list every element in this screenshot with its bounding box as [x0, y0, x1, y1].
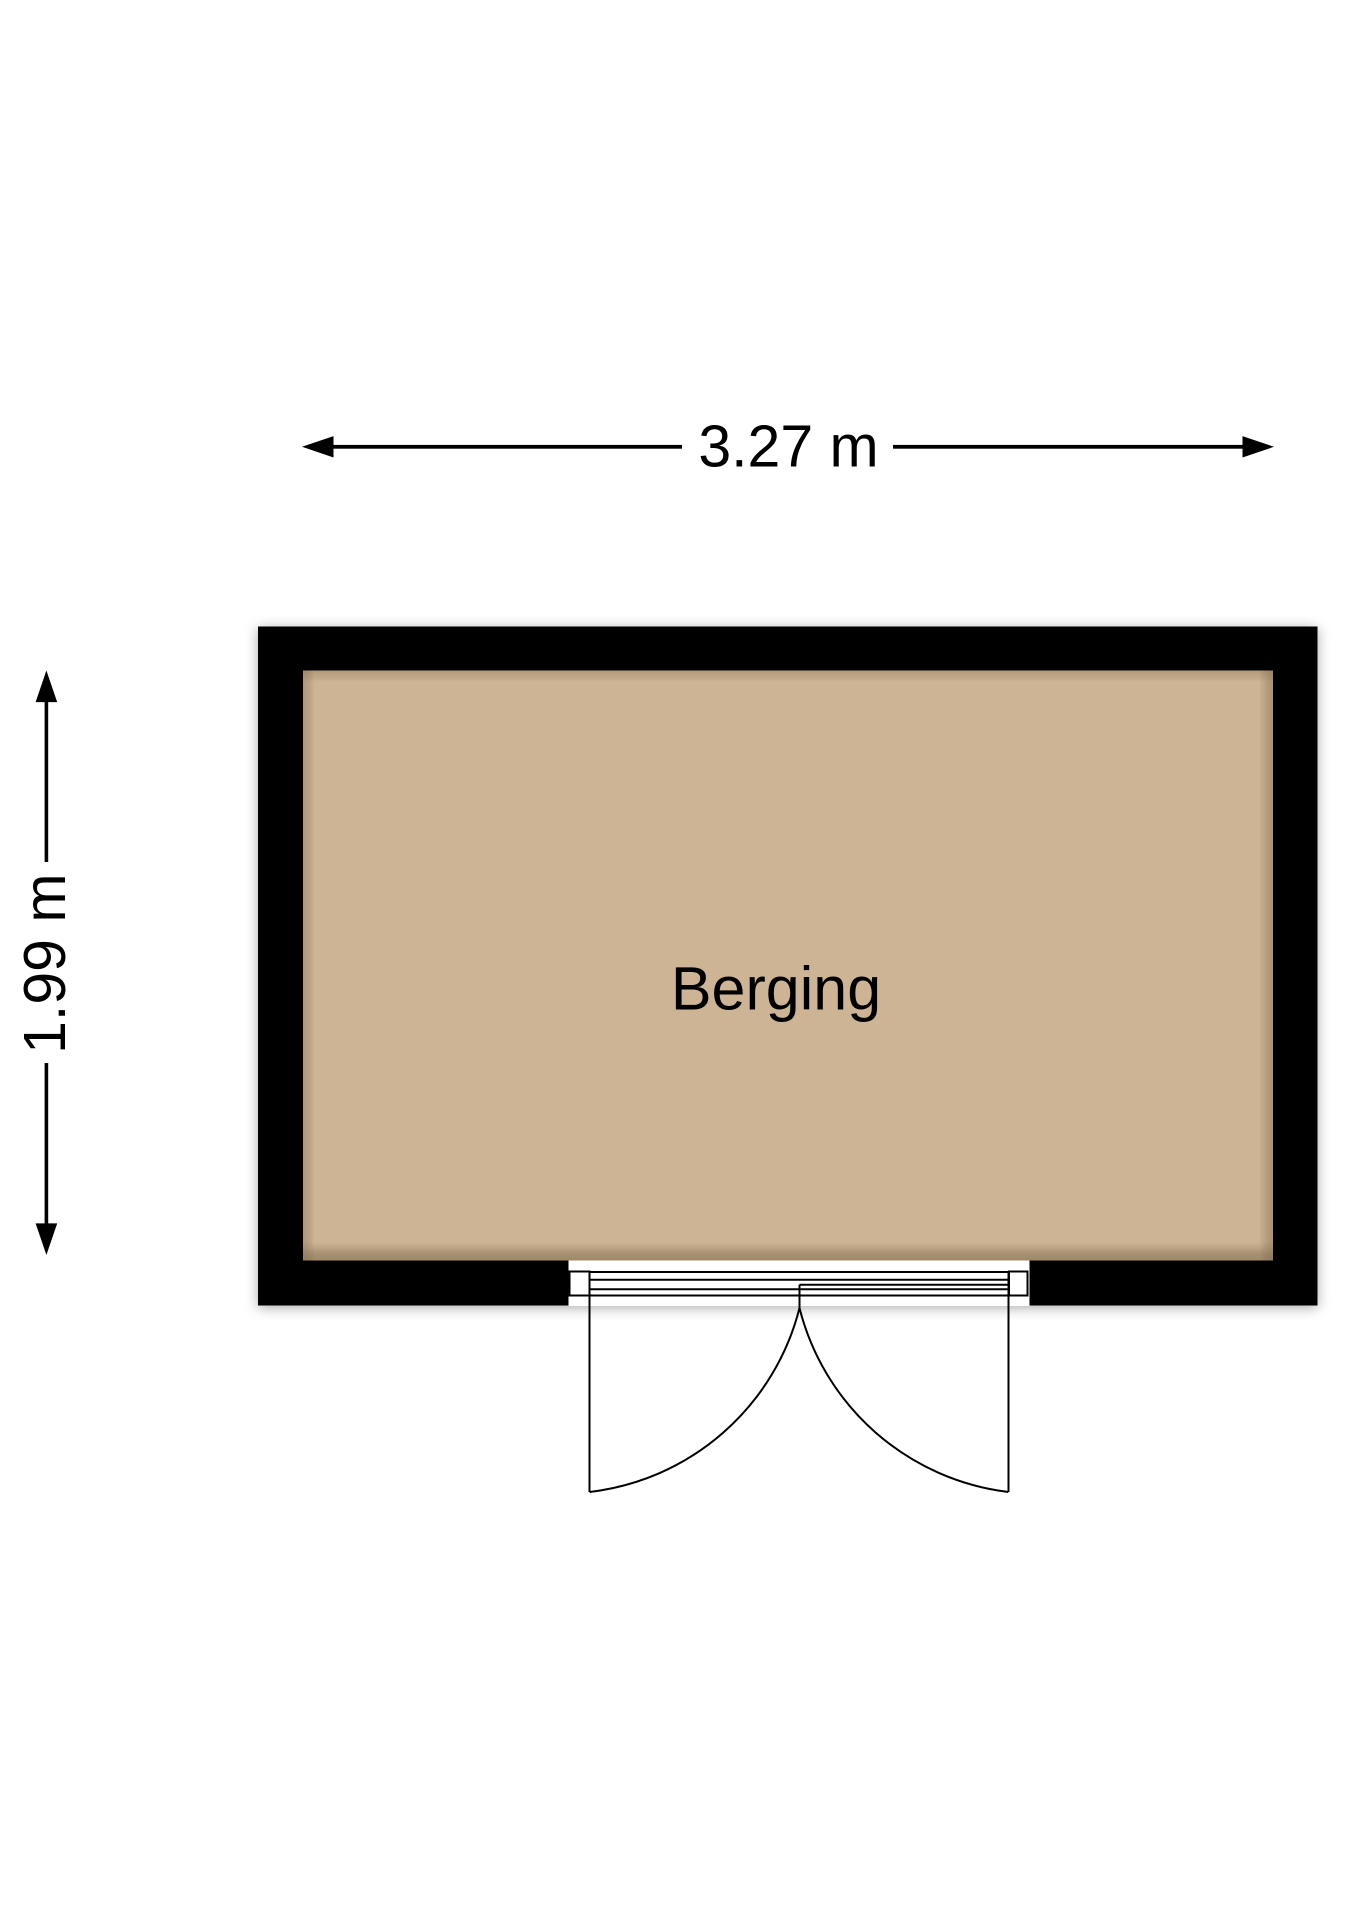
- svg-text:3.27 m: 3.27 m: [698, 414, 878, 480]
- svg-text:1.99 m: 1.99 m: [12, 874, 78, 1054]
- svg-text:Berging: Berging: [671, 955, 881, 1023]
